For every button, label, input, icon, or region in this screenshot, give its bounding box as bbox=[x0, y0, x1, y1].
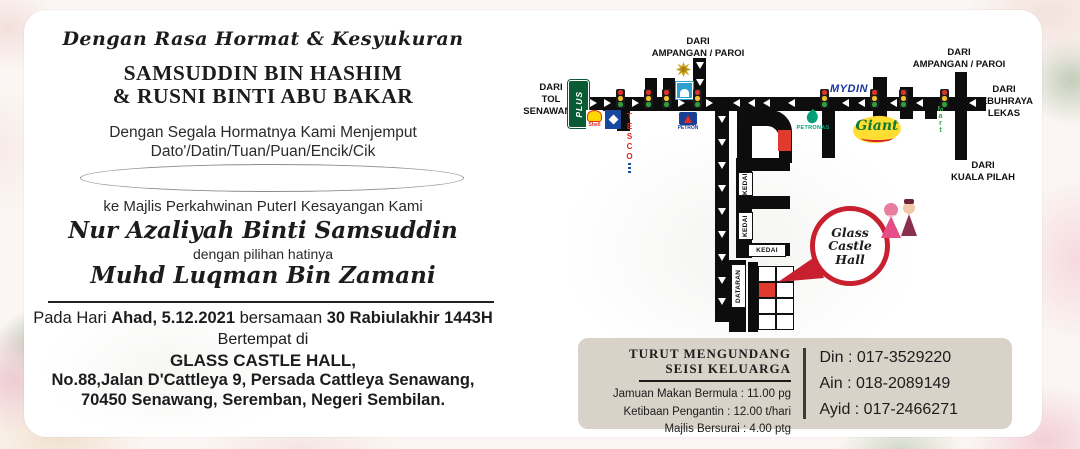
kedai-label: KEDAI bbox=[738, 212, 753, 240]
contacts-column: Din : 017-3529220 Ain : 018-2089149 Ayid… bbox=[806, 338, 958, 429]
road-arrow-icon bbox=[718, 231, 726, 238]
traffic-light-icon bbox=[820, 89, 829, 108]
grid-cell bbox=[759, 299, 775, 313]
contact-entry: Ayid : 017-2466271 bbox=[820, 397, 958, 423]
bank-icon bbox=[608, 115, 618, 125]
traffic-light-icon bbox=[870, 89, 879, 108]
dir-label-ampangan-right: DARI AMPANGAN / PAROI bbox=[880, 47, 1038, 71]
venue-intro: Bertempat di bbox=[28, 331, 498, 349]
road-arrow-icon bbox=[969, 99, 976, 107]
parents-names: SAMSUDDIN BIN HASHIM & RUSNI BINTI ABU B… bbox=[28, 62, 498, 107]
kedai-label: KEDAI bbox=[738, 172, 753, 196]
grid-cell bbox=[759, 267, 775, 281]
petronas-logo-text: PETRONAS bbox=[797, 125, 830, 131]
venue-hall-marker bbox=[759, 283, 775, 297]
guest-name-field[interactable] bbox=[80, 164, 464, 192]
petron-logo-text: PETRON bbox=[678, 125, 699, 131]
honorifics-line: Dato'/Datin/Tuan/Puan/Encik/Cik bbox=[28, 143, 498, 161]
giant-logo: Giant bbox=[853, 116, 901, 143]
traffic-light-icon bbox=[644, 89, 653, 108]
venue-block-road bbox=[748, 262, 758, 332]
shop-row-road bbox=[736, 196, 790, 209]
schedule-heading-line2: SEISI KELUARGA bbox=[584, 362, 791, 377]
date-mid: bersamaan bbox=[235, 309, 327, 327]
road-arrow-icon bbox=[916, 99, 923, 107]
road-arrow-icon bbox=[604, 99, 611, 107]
tesco-logo-text: TESCO bbox=[625, 112, 634, 162]
road-arrow-icon bbox=[733, 99, 740, 107]
venue-address-line1: No.88,Jalan D'Cattleya 9, Persada Cattle… bbox=[28, 371, 498, 390]
road-arrow-icon bbox=[706, 99, 713, 107]
petronas-drop-icon bbox=[805, 109, 821, 125]
shell-logo: Shell bbox=[586, 110, 603, 129]
bride-name: Nur Azaliyah Binti Samsuddin bbox=[28, 217, 498, 244]
road-arrow-icon bbox=[763, 99, 770, 107]
lekas-road bbox=[955, 72, 967, 160]
shell-icon bbox=[587, 110, 602, 122]
road-arrow-icon bbox=[890, 99, 897, 107]
shell-logo-text: Shell bbox=[589, 122, 601, 128]
road-arrow-icon bbox=[678, 99, 685, 107]
giant-swoosh bbox=[861, 134, 893, 142]
traffic-light-icon bbox=[693, 89, 702, 108]
mydin-logo: MYDIN bbox=[830, 83, 868, 95]
divider-line bbox=[48, 301, 494, 303]
road-arrow-icon bbox=[718, 116, 726, 123]
contact-entry: Ain : 018-2089149 bbox=[820, 371, 958, 397]
road-arrow-icon bbox=[718, 139, 726, 146]
balloon-line2: Castle bbox=[828, 239, 872, 252]
road-arrow-icon bbox=[718, 208, 726, 215]
road-arrow-icon bbox=[842, 99, 849, 107]
heading-underline bbox=[639, 380, 791, 383]
mosque-logo bbox=[676, 82, 693, 99]
state-crest-icon bbox=[675, 61, 692, 78]
schedule-column: TURUT MENGUNDANG SEISI KELUARGA Jamuan M… bbox=[578, 338, 803, 429]
dir-label-lekas: DARI LEBUHRAYA LEKAS bbox=[968, 84, 1040, 120]
grid-cell bbox=[777, 315, 793, 329]
road-arrow-icon bbox=[858, 99, 865, 107]
event-line: ke Majlis Perkahwinan PuterI Kesayangan … bbox=[28, 198, 498, 215]
dir-label-ampangan-left: DARI AMPANGAN / PAROI bbox=[633, 36, 763, 60]
road-arrow-icon bbox=[718, 162, 726, 169]
traffic-light-icon bbox=[616, 89, 625, 108]
tesco-dashes bbox=[628, 163, 631, 175]
schedule-item: Ketibaan Pengantin : 12.00 t/hari bbox=[584, 404, 791, 421]
road-arrow-icon bbox=[696, 62, 704, 69]
contact-entry: Din : 017-3529220 bbox=[820, 345, 958, 371]
road-arrow-icon bbox=[632, 99, 639, 107]
traffic-light-icon bbox=[940, 89, 949, 108]
mosque-dome-icon bbox=[680, 89, 689, 97]
location-map: KEDAI KEDAI KEDAI DATARAN Glass Castle H… bbox=[520, 0, 1080, 345]
schedule-heading-line1: TURUT MENGUNDANG bbox=[584, 347, 791, 362]
petronas-station-marker bbox=[778, 130, 791, 151]
road-arrow-icon bbox=[718, 254, 726, 261]
with-choice-line: dengan pilihan hatinya bbox=[28, 246, 498, 262]
giant-logo-text: Giant bbox=[853, 118, 901, 134]
road-arrow-icon bbox=[748, 99, 755, 107]
traffic-light-icon bbox=[899, 89, 908, 108]
petron-logo: PETRON bbox=[677, 112, 699, 131]
father-name: SAMSUDDIN BIN HASHIM bbox=[28, 62, 498, 85]
date-gregorian: Ahad, 5.12.2021 bbox=[111, 309, 235, 327]
schedule-contact-box: TURUT MENGUNDANG SEISI KELUARGA Jamuan M… bbox=[578, 338, 1012, 429]
dataran-label: DATARAN bbox=[731, 264, 746, 308]
bride-groom-illustration bbox=[876, 196, 924, 242]
tesco-logo: TESCO bbox=[625, 112, 634, 175]
shop-row-road bbox=[736, 158, 790, 171]
bank-logo bbox=[605, 110, 621, 129]
speedmart-logo: Mart bbox=[937, 106, 944, 134]
road-arrow-icon bbox=[696, 79, 704, 86]
grid-cell bbox=[777, 299, 793, 313]
date-prefix: Pada Hari bbox=[33, 309, 111, 327]
petronas-logo: PETRONAS bbox=[793, 109, 833, 131]
venue-name: GLASS CASTLE HALL, bbox=[28, 351, 498, 371]
road-arrow-icon bbox=[718, 277, 726, 284]
mother-name: & RUSNI BINTI ABU BAKAR bbox=[28, 85, 498, 108]
dir-label-kuala-pilah: DARI KUALA PILAH bbox=[928, 160, 1038, 184]
date-hijri: 30 Rabiulakhir 1443H bbox=[327, 309, 493, 327]
side-road bbox=[900, 109, 913, 119]
date-line: Pada Hari Ahad, 5.12.2021 bersamaan 30 R… bbox=[28, 309, 498, 328]
traffic-light-icon bbox=[662, 89, 671, 108]
road-arrow-icon bbox=[718, 298, 726, 305]
invite-line: Dengan Segala Hormatnya Kami Menjemput bbox=[28, 124, 498, 142]
petron-icon bbox=[679, 112, 697, 125]
opening-blessing-text: Dengan Rasa Hormat & Kesyukuran bbox=[28, 28, 498, 50]
schedule-item: Majlis Bersurai : 4.00 ptg bbox=[584, 421, 791, 438]
road-arrow-icon bbox=[718, 185, 726, 192]
schedule-item: Jamuan Makan Bermula : 11.00 pg bbox=[584, 386, 791, 403]
road-arrow-icon bbox=[590, 99, 597, 107]
side-road bbox=[925, 109, 937, 119]
venue-address-line2: 70450 Senawang, Seremban, Negeri Sembila… bbox=[28, 391, 498, 410]
balloon-line3: Hall bbox=[835, 253, 864, 266]
road-arrow-icon bbox=[788, 99, 795, 107]
grid-cell bbox=[759, 315, 775, 329]
groom-name: Muhd Luqman Bin Zamani bbox=[28, 262, 498, 289]
plus-logo-text: PLUS bbox=[574, 91, 584, 118]
